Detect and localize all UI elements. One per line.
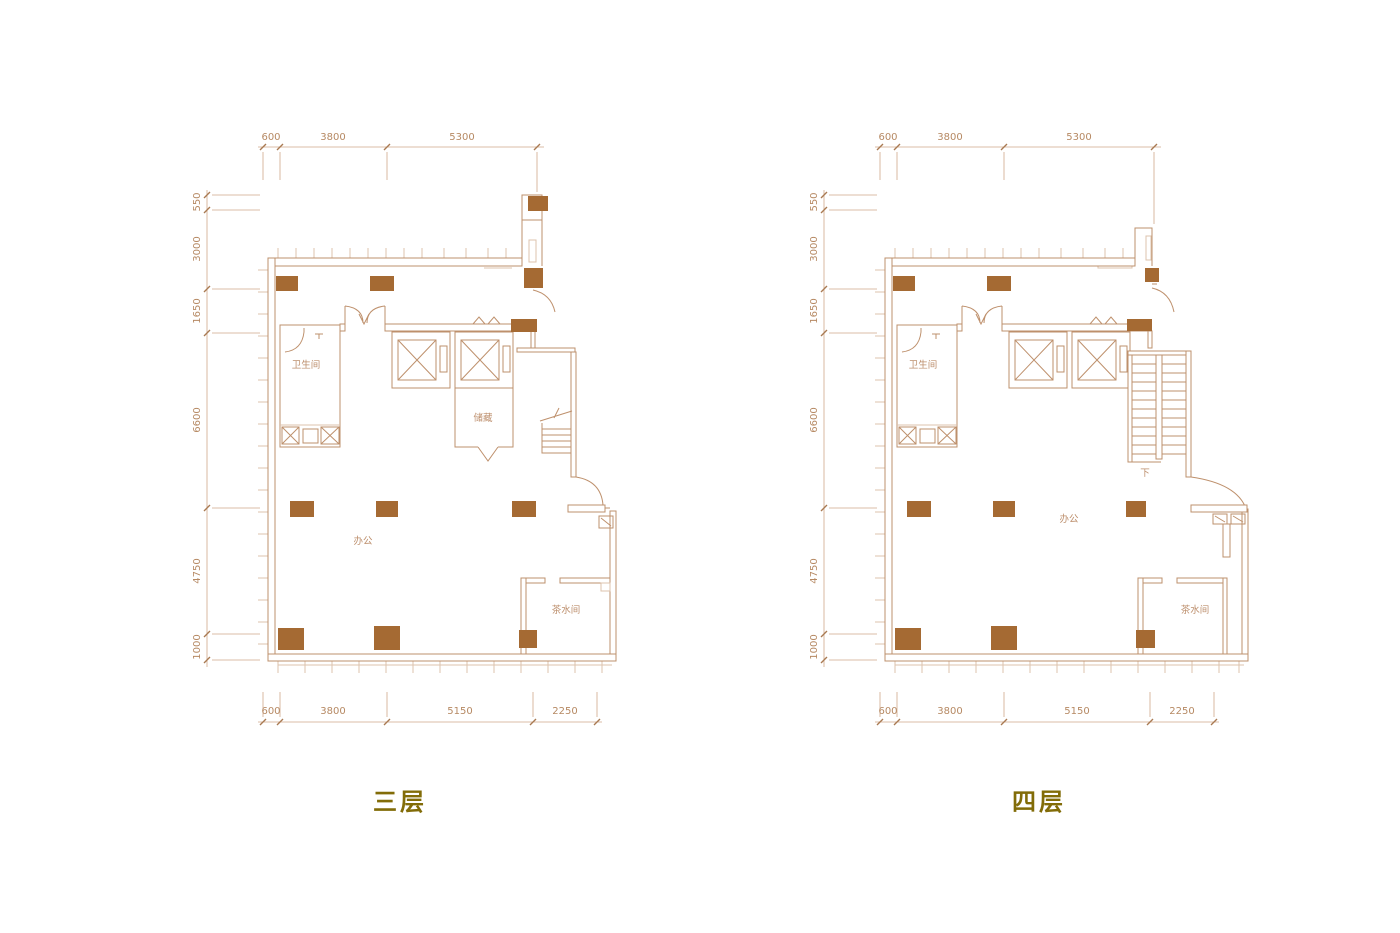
dim-label: 3800	[320, 132, 345, 143]
dim-label: 1000	[809, 634, 820, 659]
tea-room-label: 茶水间	[1181, 604, 1210, 616]
exterior-walls	[885, 258, 1248, 661]
dim-label: 2250	[552, 706, 577, 717]
dim-label: 3000	[809, 236, 820, 261]
dim-label: 3800	[937, 132, 962, 143]
dim-label: 550	[809, 192, 820, 211]
bathroom: 卫生间	[897, 325, 957, 447]
dimension-chain-left: 550 3000 1650 6600 4750 1000	[192, 190, 260, 667]
dimension-chain-top: 600 3800 5300	[875, 132, 1161, 224]
elevator-shaft-1	[392, 332, 450, 388]
dim-label: 3000	[192, 236, 203, 261]
dim-label: 3800	[937, 706, 962, 717]
office-entry-door	[568, 477, 613, 528]
lobby-partition	[340, 306, 535, 348]
dim-label: 600	[878, 706, 897, 717]
dimension-chain-top: 600 3800 5300	[258, 132, 544, 192]
bathroom-label: 卫生间	[292, 359, 321, 371]
dim-label: 600	[261, 706, 280, 717]
dim-label: 600	[878, 132, 897, 143]
office-label: 办公	[1059, 513, 1079, 525]
dim-label: 6600	[192, 407, 203, 432]
dim-label: 1650	[192, 298, 203, 323]
dim-label: 5300	[449, 132, 474, 143]
dim-label: 1650	[809, 298, 820, 323]
dimension-chain-left: 550 3000 1650 6600 4750 1000	[809, 190, 877, 667]
bathroom-label: 卫生间	[909, 359, 938, 371]
dim-label: 5150	[447, 706, 472, 717]
plan-floor-3: 600 3800 5300 550 3000 1650 6600 4750 10…	[182, 120, 682, 830]
storage-room: 储藏	[455, 388, 513, 461]
office-label: 办公	[353, 535, 373, 547]
floor-label: 三层	[373, 788, 427, 816]
plan-floor-4: 600 3800 5300 550 3000 1650 6600 4750 10…	[799, 120, 1299, 830]
dim-label: 4750	[809, 558, 820, 583]
tea-room-label: 茶水间	[552, 604, 581, 616]
main-staircase: 下	[1128, 351, 1191, 479]
storage-label: 储藏	[473, 412, 493, 424]
dimension-chain-bottom: 600 3800 5150 2250	[875, 692, 1219, 725]
stair-down-label: 下	[1140, 468, 1150, 479]
dim-label: 5300	[1066, 132, 1091, 143]
elevator-shaft-1	[1009, 332, 1067, 388]
bathroom: 卫生间	[280, 325, 340, 447]
dim-label: 4750	[192, 558, 203, 583]
small-staircase	[540, 408, 572, 453]
entry-recess	[522, 195, 555, 312]
office-entry-door	[1191, 477, 1247, 557]
dim-label: 3800	[320, 706, 345, 717]
dim-label: 600	[261, 132, 280, 143]
dim-label: 550	[192, 192, 203, 211]
dimension-chain-bottom: 600 3800 5150 2250	[258, 692, 602, 725]
dim-label: 5150	[1064, 706, 1089, 717]
lobby-partition	[957, 306, 1152, 348]
dim-label: 2250	[1169, 706, 1194, 717]
floor-label: 四层	[1012, 788, 1066, 816]
floorplan-canvas: 600 3800 5300 550 3000 1650 6600 4750 10…	[0, 0, 1400, 933]
exterior-walls	[268, 258, 616, 661]
dim-label: 1000	[192, 634, 203, 659]
dim-label: 6600	[809, 407, 820, 432]
